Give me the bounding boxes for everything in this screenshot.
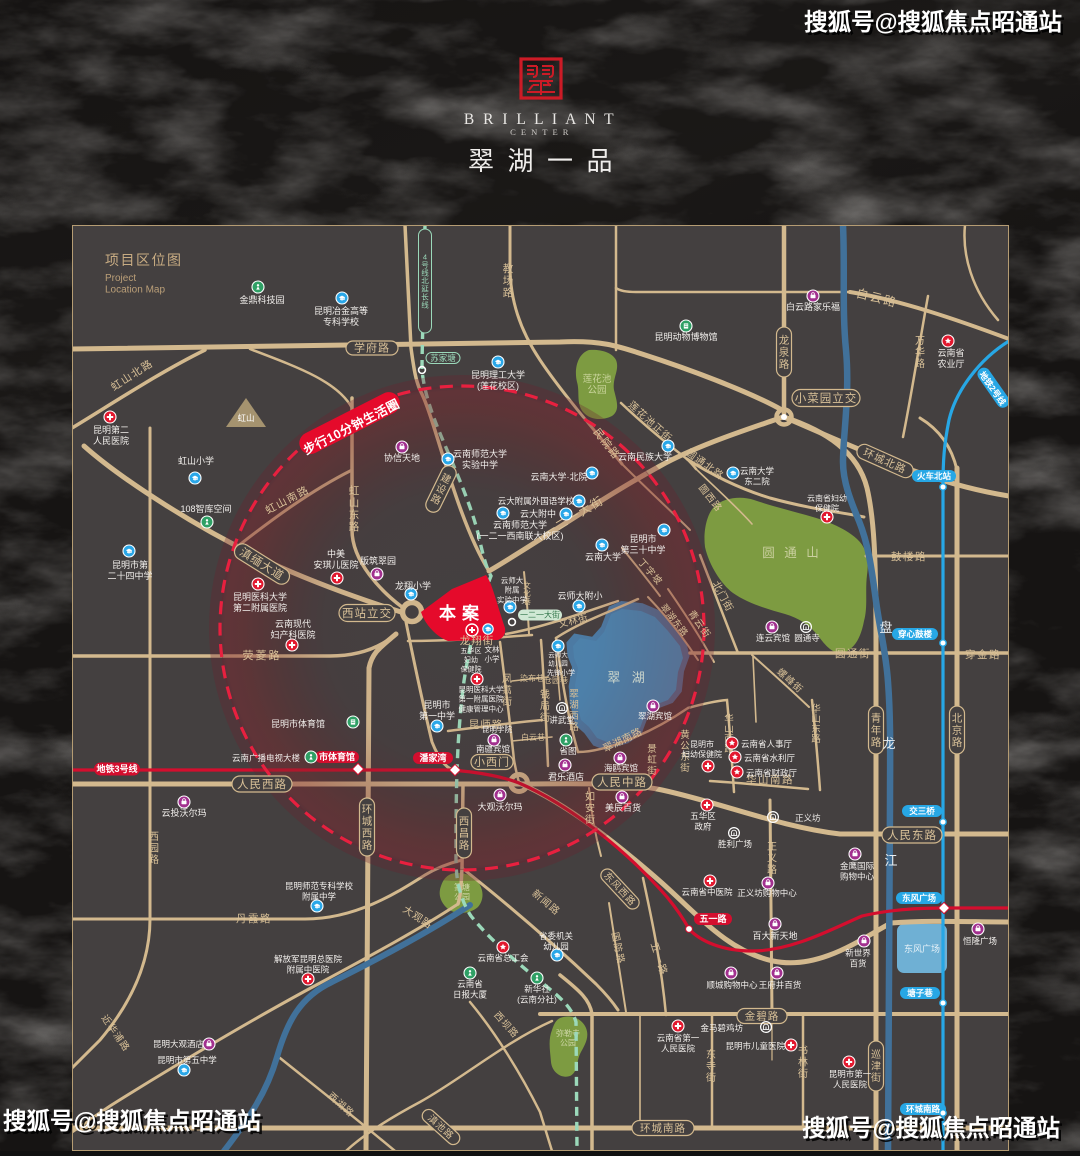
svg-text:白云巷: 白云巷 xyxy=(521,732,545,742)
svg-text:农业厅: 农业厅 xyxy=(937,358,964,369)
svg-text:安: 安 xyxy=(585,802,595,815)
svg-text:云南省水利厅: 云南省水利厅 xyxy=(744,753,796,763)
svg-text:昆明理工大学: 昆明理工大学 xyxy=(471,369,525,380)
svg-text:西: 西 xyxy=(149,832,159,843)
svg-text:白云路家乐福: 白云路家乐福 xyxy=(786,301,840,312)
svg-text:圆通寺: 圆通寺 xyxy=(794,633,820,643)
svg-text:华: 华 xyxy=(915,346,925,359)
svg-text:实验中学: 实验中学 xyxy=(497,594,527,604)
svg-text:C E N T E R: C E N T E R xyxy=(510,127,570,137)
svg-text:穿心鼓楼: 穿心鼓楼 xyxy=(898,629,933,639)
svg-text:108智库空间: 108智库空间 xyxy=(180,503,231,514)
svg-text:云师大: 云师大 xyxy=(548,650,568,659)
svg-text:第一中学: 第一中学 xyxy=(419,710,455,721)
svg-text:正: 正 xyxy=(767,842,777,853)
svg-text:钱: 钱 xyxy=(540,688,550,701)
svg-text:正义坊: 正义坊 xyxy=(795,813,821,823)
svg-text:场: 场 xyxy=(503,274,514,287)
svg-text:(莲花校区): (莲花校区) xyxy=(477,380,519,391)
svg-text:安琪儿医院: 安琪儿医院 xyxy=(313,559,358,570)
svg-text:环城南路: 环城南路 xyxy=(640,1122,686,1135)
svg-text:人民东路: 人民东路 xyxy=(887,828,937,842)
svg-text:幼儿园: 幼儿园 xyxy=(543,942,569,952)
svg-text:云大附属外国语学校: 云大附属外国语学校 xyxy=(498,496,575,506)
svg-text:搜狐号@搜狐焦点昭通站: 搜狐号@搜狐焦点昭通站 xyxy=(3,1107,261,1134)
svg-text:云南师范大学: 云南师范大学 xyxy=(453,448,507,459)
svg-text:东二院: 东二院 xyxy=(744,477,770,487)
svg-text:昆明冶金高等: 昆明冶金高等 xyxy=(314,305,368,316)
svg-text:园: 园 xyxy=(149,843,159,855)
svg-text:书: 书 xyxy=(798,1045,808,1057)
svg-text:交三桥: 交三桥 xyxy=(909,806,935,816)
svg-text:丹霞路: 丹霞路 xyxy=(236,912,272,925)
svg-text:人民中路: 人民中路 xyxy=(597,775,647,789)
svg-text:公园: 公园 xyxy=(587,385,606,396)
svg-text:南疆宾馆: 南疆宾馆 xyxy=(476,744,510,754)
svg-text:金鹰国际: 金鹰国际 xyxy=(840,861,875,871)
svg-text:翥: 翥 xyxy=(502,684,512,697)
svg-text:顺城购物中心: 顺城购物中心 xyxy=(706,980,758,990)
svg-text:翠: 翠 xyxy=(569,689,579,700)
svg-text:新世界: 新世界 xyxy=(845,948,871,958)
svg-text:讲武堂: 讲武堂 xyxy=(549,715,575,725)
svg-text:日报大厦: 日报大厦 xyxy=(453,990,488,1000)
svg-text:京: 京 xyxy=(952,724,963,737)
svg-text:教: 教 xyxy=(503,262,514,275)
svg-text:江: 江 xyxy=(884,853,897,868)
svg-text:街: 街 xyxy=(706,1071,716,1084)
svg-text:东风广场: 东风广场 xyxy=(902,893,937,903)
svg-text:街: 街 xyxy=(871,1071,881,1084)
svg-text:云南师范大学: 云南师范大学 xyxy=(493,519,547,530)
svg-text:东风广场: 东风广场 xyxy=(904,943,940,954)
svg-text:地铁3号线: 地铁3号线 xyxy=(96,763,137,774)
svg-text:学府路: 学府路 xyxy=(354,341,390,355)
svg-text:泉: 泉 xyxy=(779,346,790,359)
svg-text:项目区位图: 项目区位图 xyxy=(105,253,183,269)
svg-text:湖: 湖 xyxy=(569,700,579,711)
svg-text:中美: 中美 xyxy=(327,548,345,559)
svg-text:王府井百货: 王府井百货 xyxy=(759,980,802,990)
svg-text:胜利广场: 胜利广场 xyxy=(718,839,752,849)
svg-text:虹: 虹 xyxy=(647,755,657,766)
svg-text:黄: 黄 xyxy=(680,729,690,741)
svg-text:景: 景 xyxy=(647,744,657,755)
svg-text:义: 义 xyxy=(767,853,777,865)
svg-text:金碧路: 金碧路 xyxy=(745,1010,780,1023)
svg-text:青: 青 xyxy=(871,712,882,725)
svg-text:街: 街 xyxy=(680,762,690,774)
svg-text:昆明第二: 昆明第二 xyxy=(93,424,129,435)
svg-text:云南大学: 云南大学 xyxy=(585,551,621,562)
svg-text:云南广播电视大楼: 云南广播电视大楼 xyxy=(232,753,301,763)
svg-text:Location Map: Location Map xyxy=(105,285,165,296)
svg-text:百大新天地: 百大新天地 xyxy=(752,930,797,941)
svg-text:省委机关: 省委机关 xyxy=(539,931,574,941)
svg-text:人民西路: 人民西路 xyxy=(237,777,287,791)
svg-text:街: 街 xyxy=(585,813,595,826)
svg-text:保健院: 保健院 xyxy=(815,503,839,513)
svg-text:云投沃尔玛: 云投沃尔玛 xyxy=(161,807,206,818)
svg-text:路: 路 xyxy=(915,357,925,370)
svg-text:连云宾馆: 连云宾馆 xyxy=(756,633,790,643)
svg-text:大观沃尔玛: 大观沃尔玛 xyxy=(477,801,522,812)
svg-text:小菜园立交: 小菜园立交 xyxy=(795,391,858,405)
svg-text:正义坊购物中心: 正义坊购物中心 xyxy=(737,888,797,898)
svg-text:金马碧鸡坊: 金马碧鸡坊 xyxy=(700,1023,743,1033)
svg-text:美辰百货: 美辰百货 xyxy=(605,802,641,813)
svg-text:虹: 虹 xyxy=(349,485,360,497)
svg-text:巡: 巡 xyxy=(871,1049,881,1061)
svg-text:昆明师范专科学校: 昆明师范专科学校 xyxy=(285,881,354,891)
svg-text:第三十中学: 第三十中学 xyxy=(620,544,665,555)
svg-text:五华区: 五华区 xyxy=(690,811,716,821)
svg-text:龙翔小学: 龙翔小学 xyxy=(395,580,431,591)
svg-text:路: 路 xyxy=(871,736,882,749)
svg-text:莲花池: 莲花池 xyxy=(583,373,612,385)
svg-text:海鸥宾馆: 海鸥宾馆 xyxy=(604,763,638,773)
svg-text:专科学校: 专科学校 xyxy=(323,316,359,327)
svg-text:小学: 小学 xyxy=(485,654,500,664)
svg-text:年: 年 xyxy=(871,724,882,737)
svg-text:翠湖一品: 翠湖一品 xyxy=(468,147,626,176)
svg-text:附属中学: 附属中学 xyxy=(302,892,337,902)
svg-text:幼儿园: 幼儿园 xyxy=(548,659,568,668)
svg-text:塘子巷: 塘子巷 xyxy=(907,988,933,998)
svg-text:云南民族大学: 云南民族大学 xyxy=(618,451,672,462)
svg-text:昆明市: 昆明市 xyxy=(690,739,714,749)
svg-text:山: 山 xyxy=(349,497,360,509)
svg-text:附属中医院: 附属中医院 xyxy=(287,965,330,975)
svg-text:云南省人事厅: 云南省人事厅 xyxy=(741,739,793,749)
svg-text:街: 街 xyxy=(502,695,512,708)
svg-text:云南大学: 云南大学 xyxy=(740,466,775,476)
svg-text:龙: 龙 xyxy=(882,736,895,751)
svg-text:市体育馆: 市体育馆 xyxy=(319,751,355,762)
svg-text:昆明医科大学: 昆明医科大学 xyxy=(233,591,287,602)
svg-text:鼓楼路: 鼓楼路 xyxy=(891,550,927,563)
svg-text:云南省第一: 云南省第一 xyxy=(657,1033,700,1043)
svg-text:津: 津 xyxy=(871,1060,881,1072)
svg-text:百货: 百货 xyxy=(849,959,867,969)
svg-text:路: 路 xyxy=(952,736,963,749)
svg-text:云南省财政厅: 云南省财政厅 xyxy=(746,768,798,778)
svg-text:云师大附小: 云师大附小 xyxy=(557,590,602,601)
svg-text:保健院: 保健院 xyxy=(461,664,482,673)
svg-text:云大附中: 云大附中 xyxy=(520,508,556,519)
svg-text:购物中心: 购物中心 xyxy=(840,872,875,882)
svg-text:Project: Project xyxy=(105,273,136,284)
svg-text:局: 局 xyxy=(540,701,550,713)
svg-text:昆明市: 昆明市 xyxy=(629,533,656,544)
svg-text:路: 路 xyxy=(149,853,159,866)
svg-text:附属: 附属 xyxy=(505,586,520,595)
svg-text:云南省中医院: 云南省中医院 xyxy=(681,887,733,897)
svg-text:染布巷: 染布巷 xyxy=(520,673,544,683)
svg-text:圆 通 山: 圆 通 山 xyxy=(762,546,821,560)
svg-text:西: 西 xyxy=(362,828,373,840)
svg-text:穿金路: 穿金路 xyxy=(965,648,1001,661)
svg-text:龙: 龙 xyxy=(779,334,790,347)
svg-text:凤: 凤 xyxy=(502,673,512,685)
svg-text:妇幼保健院: 妇幼保健院 xyxy=(682,749,722,759)
svg-text:人民医院: 人民医院 xyxy=(833,1080,868,1090)
svg-text:昆明学院: 昆明学院 xyxy=(482,724,512,734)
svg-text:B R I L L I A N T: B R I L L I A N T xyxy=(464,111,616,128)
svg-text:(云南分社): (云南分社) xyxy=(517,995,557,1005)
svg-text:翠湖宾馆: 翠湖宾馆 xyxy=(638,711,672,721)
svg-text:路: 路 xyxy=(503,286,514,299)
svg-text:盘: 盘 xyxy=(879,620,892,635)
svg-text:潘家湾: 潘家湾 xyxy=(419,752,446,763)
svg-text:路: 路 xyxy=(779,358,790,371)
svg-text:云南大学·北院: 云南大学·北院 xyxy=(531,471,588,482)
svg-text:云南现代: 云南现代 xyxy=(275,618,311,629)
svg-text:省图: 省图 xyxy=(559,746,576,756)
svg-text:恒隆广场: 恒隆广场 xyxy=(963,936,997,946)
svg-text:圆通街: 圆通街 xyxy=(835,647,871,660)
svg-text:线: 线 xyxy=(421,300,429,310)
svg-text:街: 街 xyxy=(798,1067,808,1080)
svg-text:虹山小学: 虹山小学 xyxy=(178,455,214,466)
svg-text:云师大: 云师大 xyxy=(501,575,524,585)
svg-text:版筑翠园: 版筑翠园 xyxy=(360,555,396,566)
svg-text:荧菱路: 荧菱路 xyxy=(243,648,282,662)
svg-text:路: 路 xyxy=(349,520,360,533)
svg-text:昆明动物博物馆: 昆明动物博物馆 xyxy=(654,331,717,342)
svg-text:东: 东 xyxy=(706,1048,716,1061)
svg-text:路: 路 xyxy=(767,863,777,876)
svg-text:西站立交: 西站立交 xyxy=(342,606,392,620)
svg-text:公园: 公园 xyxy=(560,1039,576,1048)
svg-text:昆明市第五中学: 昆明市第五中学 xyxy=(157,1055,217,1065)
svg-text:虹山: 虹山 xyxy=(237,413,254,423)
svg-text:第二附属医院: 第二附属医院 xyxy=(233,602,287,613)
svg-text:翠 湖: 翠 湖 xyxy=(607,670,649,685)
svg-text:昌: 昌 xyxy=(459,828,470,840)
svg-text:昆明市第一: 昆明市第一 xyxy=(829,1069,872,1079)
svg-text:火车北站: 火车北站 xyxy=(917,471,952,481)
svg-text:北: 北 xyxy=(952,713,963,725)
svg-text:搜狐号@搜狐焦点昭通站: 搜狐号@搜狐焦点昭通站 xyxy=(802,1114,1060,1141)
svg-text:第一附属医院: 第一附属医院 xyxy=(459,694,504,704)
svg-text:昆明市: 昆明市 xyxy=(423,699,450,710)
svg-text:小西门: 小西门 xyxy=(474,755,510,769)
svg-text:解放军昆明总医院: 解放军昆明总医院 xyxy=(274,954,343,964)
svg-text:昆明医科大学: 昆明医科大学 xyxy=(459,684,504,694)
svg-text:二十四中学: 二十四中学 xyxy=(107,570,152,581)
svg-text:人民医院: 人民医院 xyxy=(93,435,129,446)
svg-text:五华区: 五华区 xyxy=(461,646,482,655)
svg-text:先锋小学: 先锋小学 xyxy=(547,668,575,677)
svg-text:五一路: 五一路 xyxy=(699,913,727,924)
svg-text:昆明市儿童医院: 昆明市儿童医院 xyxy=(725,1041,785,1051)
svg-text:妇幼: 妇幼 xyxy=(464,655,478,664)
svg-text:如: 如 xyxy=(585,790,595,803)
svg-text:林: 林 xyxy=(798,1056,808,1069)
svg-text:昆明大观酒店: 昆明大观酒店 xyxy=(153,1039,205,1049)
svg-text:东: 东 xyxy=(349,508,360,521)
svg-text:政府: 政府 xyxy=(694,822,712,832)
svg-text:(一二一西南联大校区): (一二一西南联大校区) xyxy=(477,530,564,541)
svg-text:城: 城 xyxy=(362,816,373,828)
svg-text:新华社: 新华社 xyxy=(524,984,550,994)
svg-text:文林: 文林 xyxy=(485,644,500,654)
svg-text:环城南路: 环城南路 xyxy=(906,1104,941,1114)
svg-text:君乐酒店: 君乐酒店 xyxy=(548,771,584,782)
svg-text:云南省: 云南省 xyxy=(937,347,964,358)
svg-text:金鼎科技园: 金鼎科技园 xyxy=(239,294,284,305)
svg-text:云南省总工会: 云南省总工会 xyxy=(477,953,529,963)
svg-text:苏家塘: 苏家塘 xyxy=(430,353,456,363)
svg-text:路: 路 xyxy=(811,733,821,745)
svg-text:协信天地: 协信天地 xyxy=(384,452,420,463)
svg-text:云南省: 云南省 xyxy=(457,979,483,989)
svg-text:昆明市第: 昆明市第 xyxy=(112,559,148,570)
svg-text:人民医院: 人民医院 xyxy=(661,1044,696,1054)
svg-text:昆明市体育馆: 昆明市体育馆 xyxy=(271,718,325,729)
svg-text:寺: 寺 xyxy=(706,1061,716,1073)
svg-text:西: 西 xyxy=(459,816,470,828)
svg-text:健康管理中心: 健康管理中心 xyxy=(459,703,504,713)
svg-text:搜狐号@搜狐焦点昭通站: 搜狐号@搜狐焦点昭通站 xyxy=(804,8,1062,35)
svg-text:一二一大街: 一二一大街 xyxy=(520,610,560,620)
svg-text:万: 万 xyxy=(915,336,925,347)
svg-text:实验中学: 实验中学 xyxy=(462,459,498,470)
svg-text:环: 环 xyxy=(362,804,373,816)
svg-text:路: 路 xyxy=(362,839,373,852)
svg-text:云南省妇幼: 云南省妇幼 xyxy=(807,493,847,503)
svg-text:路: 路 xyxy=(459,839,470,852)
svg-text:妇产科医院: 妇产科医院 xyxy=(270,629,315,640)
svg-text:本案: 本案 xyxy=(439,603,485,623)
